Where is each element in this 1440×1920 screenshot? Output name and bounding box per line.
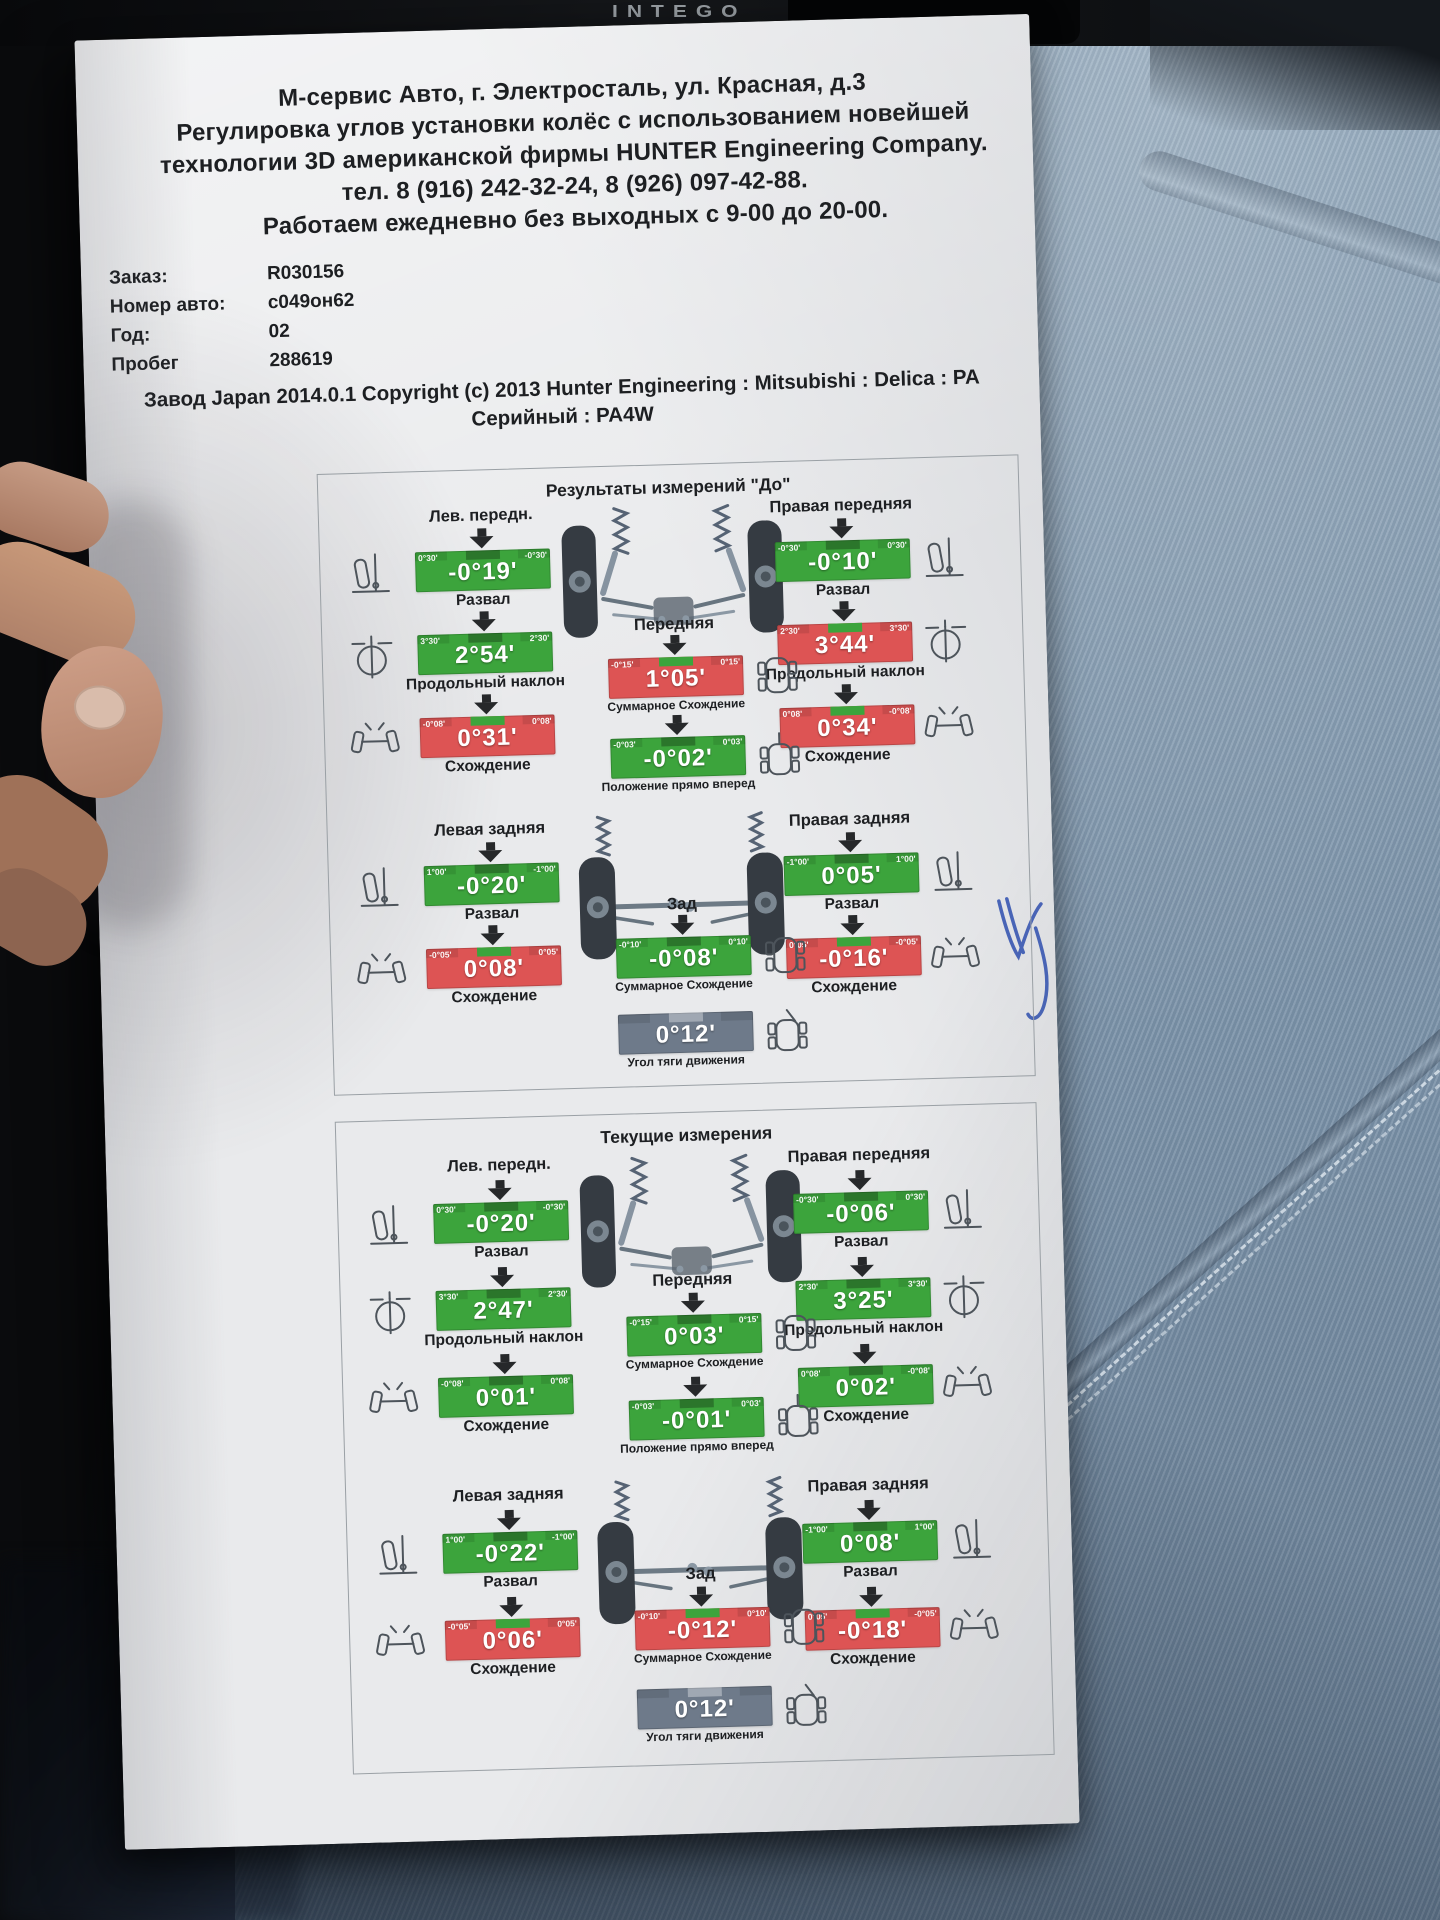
info-value: 02 bbox=[268, 321, 290, 343]
down-arrow-icon bbox=[859, 1587, 884, 1608]
arrow-head bbox=[850, 1265, 874, 1278]
measure-bar: -0°10'0°10'-0°08' bbox=[616, 935, 752, 979]
info-label: Номер авто: bbox=[110, 288, 269, 321]
arrow-head bbox=[859, 1595, 883, 1608]
bar-shoulder bbox=[637, 1689, 669, 1699]
arrow-head bbox=[689, 1594, 713, 1607]
caster-icon bbox=[364, 1289, 419, 1336]
total-toe-icon bbox=[777, 1603, 832, 1650]
range-label-left: -0°10' bbox=[619, 939, 642, 950]
arrow-head bbox=[472, 619, 496, 632]
arrow-head bbox=[852, 1352, 876, 1365]
total-toe-icon bbox=[759, 931, 814, 978]
photo-scene: INTEGO М-сервис Авто, г. Электросталь, у… bbox=[0, 0, 1440, 1920]
range-label-left: 3°30' bbox=[439, 1291, 459, 1302]
measure-bar: -0°30'0°30'-0°06' bbox=[793, 1190, 929, 1234]
thrust-icon bbox=[761, 1007, 816, 1054]
measure-bar: 0°12' bbox=[618, 1011, 754, 1055]
measure-caption: Продольный наклон bbox=[389, 1327, 619, 1351]
arrow-head bbox=[481, 933, 505, 946]
range-label-left: 1°00' bbox=[427, 867, 447, 878]
range-label-left: -1°00' bbox=[787, 856, 810, 867]
target-notch bbox=[468, 633, 502, 643]
alignment-report-paper: М-сервис Авто, г. Электросталь, ул. Крас… bbox=[74, 14, 1079, 1850]
arrow-stem bbox=[841, 684, 850, 692]
info-label: Заказ: bbox=[109, 259, 268, 292]
arrow-head bbox=[490, 1275, 514, 1288]
range-label-left: -1°00' bbox=[805, 1524, 828, 1535]
arrow-stem bbox=[507, 1597, 516, 1605]
down-arrow-icon bbox=[478, 842, 503, 863]
range-label-right: -0°05' bbox=[914, 1608, 937, 1619]
range-label-right: 0°10' bbox=[747, 1608, 767, 1619]
info-row: Пробег288619 bbox=[111, 344, 356, 380]
arrow-stem bbox=[864, 1500, 873, 1508]
down-arrow-icon bbox=[474, 694, 499, 715]
range-label-right: 1°00' bbox=[896, 853, 916, 864]
measure-bar: -0°05'0°05'0°08' bbox=[426, 945, 562, 989]
camber-icon bbox=[353, 865, 408, 912]
measure-caption: Схождение bbox=[391, 1414, 621, 1438]
range-label-right: 3°30' bbox=[889, 622, 909, 633]
measurement-panel-1: Результаты измерений "До"Лев. передн.Пра… bbox=[317, 454, 1036, 1095]
arrow-stem bbox=[857, 1257, 866, 1265]
down-arrow-icon bbox=[469, 528, 494, 549]
caster-icon bbox=[938, 1273, 993, 1320]
target-notch bbox=[830, 706, 864, 716]
range-label-right: 3°30' bbox=[908, 1278, 928, 1289]
arrow-head bbox=[838, 840, 862, 853]
arrow-stem bbox=[837, 518, 846, 526]
target-notch bbox=[836, 937, 870, 947]
info-value: R030156 bbox=[267, 261, 345, 284]
range-label-right: -0°08' bbox=[889, 705, 912, 716]
arrow-head bbox=[832, 609, 856, 622]
measure-bar: -0°03'0°03'-0°01' bbox=[629, 1397, 765, 1441]
caster-icon bbox=[346, 634, 401, 681]
measure-bar: 0°12' bbox=[637, 1686, 773, 1730]
arrow-stem bbox=[848, 915, 857, 923]
target-notch bbox=[834, 854, 868, 864]
range-label-right: -1°00' bbox=[552, 1531, 575, 1542]
range-label-left: -0°08' bbox=[423, 718, 446, 729]
bar-shoulder bbox=[618, 1014, 650, 1024]
arrow-head bbox=[493, 1362, 517, 1375]
down-arrow-icon bbox=[857, 1500, 882, 1521]
target-notch bbox=[687, 1687, 721, 1697]
bar-shoulder bbox=[721, 1011, 753, 1021]
target-notch bbox=[484, 1202, 518, 1212]
camber-icon bbox=[926, 849, 981, 896]
measure-bar: -1°00'1°00'0°08' bbox=[802, 1520, 938, 1564]
target-notch bbox=[495, 1618, 529, 1628]
arrow-stem bbox=[670, 635, 679, 643]
range-label-right: 0°15' bbox=[739, 1314, 759, 1325]
arrow-head bbox=[665, 723, 689, 736]
down-arrow-icon bbox=[847, 1170, 872, 1191]
target-notch bbox=[685, 1608, 719, 1618]
arrow-head bbox=[499, 1605, 523, 1618]
range-label-left: 1°00' bbox=[445, 1534, 465, 1545]
range-label-right: 0°03' bbox=[723, 736, 743, 747]
target-notch bbox=[488, 1376, 522, 1386]
arrow-stem bbox=[488, 925, 497, 933]
range-label-left: 0°30' bbox=[418, 553, 438, 564]
target-notch bbox=[677, 1314, 711, 1324]
info-label: Пробег bbox=[111, 346, 270, 379]
measure-bar: -0°30'0°30'-0°10' bbox=[775, 538, 911, 582]
straight-ahead-icon bbox=[753, 731, 808, 778]
target-notch bbox=[668, 1012, 702, 1022]
range-label-right: 0°30' bbox=[887, 540, 907, 551]
target-notch bbox=[658, 657, 692, 667]
camber-icon bbox=[936, 1186, 991, 1233]
measure-bar: -0°10'0°10'-0°12' bbox=[635, 1607, 771, 1651]
toe-icon bbox=[941, 1360, 996, 1407]
arrow-head bbox=[848, 1178, 872, 1191]
target-notch bbox=[828, 623, 862, 633]
down-arrow-icon bbox=[683, 1376, 708, 1397]
down-arrow-icon bbox=[689, 1586, 714, 1607]
measure-caption: Схождение bbox=[373, 754, 603, 778]
down-arrow-icon bbox=[487, 1180, 512, 1201]
range-label-right: 2°30' bbox=[530, 633, 550, 644]
arrow-stem bbox=[839, 601, 848, 609]
arrow-stem bbox=[500, 1354, 509, 1362]
info-label: Год: bbox=[110, 317, 269, 350]
total-toe-icon bbox=[769, 1309, 824, 1356]
arrow-head bbox=[469, 536, 493, 549]
arrow-head bbox=[663, 643, 687, 656]
range-label-left: -0°05' bbox=[429, 949, 452, 960]
arrow-head bbox=[488, 1188, 512, 1201]
arrow-stem bbox=[485, 842, 494, 850]
down-arrow-icon bbox=[681, 1292, 706, 1313]
range-label-left: 0°08' bbox=[782, 709, 802, 720]
target-notch bbox=[474, 864, 508, 874]
range-label-right: -0°08' bbox=[907, 1365, 930, 1376]
down-arrow-icon bbox=[665, 715, 690, 736]
target-notch bbox=[848, 1366, 882, 1376]
range-label-left: -0°03' bbox=[613, 739, 636, 750]
arrow-stem bbox=[672, 715, 681, 723]
range-label-right: 0°05' bbox=[557, 1618, 577, 1629]
range-label-left: -0°03' bbox=[632, 1401, 655, 1412]
down-arrow-icon bbox=[838, 832, 863, 853]
camber-icon bbox=[344, 551, 399, 598]
range-label-right: 0°08' bbox=[550, 1375, 570, 1386]
range-label-right: -0°30' bbox=[543, 1201, 566, 1212]
measure-bar: -0°05'0°05'0°06' bbox=[445, 1617, 581, 1661]
target-notch bbox=[666, 936, 700, 946]
arrow-stem bbox=[678, 915, 687, 923]
toe-icon bbox=[922, 701, 977, 748]
arrow-head bbox=[829, 526, 853, 539]
info-value: 288619 bbox=[269, 348, 333, 371]
down-arrow-icon bbox=[829, 518, 854, 539]
toe-icon bbox=[367, 1376, 422, 1423]
range-label-right: 1°00' bbox=[915, 1521, 935, 1532]
caster-icon bbox=[920, 618, 975, 665]
arrow-stem bbox=[495, 1180, 504, 1188]
camber-icon bbox=[918, 535, 973, 582]
measure-bar: 0°30'-0°30'-0°19' bbox=[415, 548, 551, 592]
range-label-left: -0°05' bbox=[448, 1621, 471, 1632]
down-arrow-icon bbox=[492, 1354, 517, 1375]
arrow-head bbox=[681, 1300, 705, 1313]
target-notch bbox=[825, 540, 859, 550]
down-arrow-icon bbox=[472, 611, 497, 632]
down-arrow-icon bbox=[834, 684, 859, 705]
measurement-panel-2: Текущие измеренияЛев. передн.Правая пере… bbox=[335, 1102, 1055, 1774]
total-toe-icon bbox=[751, 651, 806, 698]
down-arrow-icon bbox=[490, 1267, 515, 1288]
target-notch bbox=[853, 1521, 887, 1531]
top-right-shadow bbox=[1150, 0, 1440, 130]
range-label-left: -0°30' bbox=[778, 542, 801, 553]
down-arrow-icon bbox=[662, 635, 687, 656]
arrow-stem bbox=[504, 1510, 513, 1518]
arrow-head bbox=[834, 692, 858, 705]
range-label-right: 0°30' bbox=[905, 1191, 925, 1202]
target-notch bbox=[855, 1608, 889, 1618]
camber-icon bbox=[362, 1202, 417, 1249]
measure-bar: -0°03'0°03'-0°02' bbox=[610, 735, 746, 779]
range-label-right: 2°30' bbox=[548, 1288, 568, 1299]
measure-bar: -0°15'0°15'1°05' bbox=[608, 655, 744, 699]
measure-bar: -0°15'0°15'0°03' bbox=[626, 1313, 762, 1357]
toe-icon bbox=[947, 1603, 1002, 1650]
target-notch bbox=[846, 1279, 880, 1289]
range-label-right: 0°15' bbox=[720, 656, 740, 667]
toe-icon bbox=[355, 948, 410, 995]
arrow-stem bbox=[855, 1170, 864, 1178]
range-label-left: 0°08' bbox=[801, 1368, 821, 1379]
measure-bar: -0°08'0°08'0°31' bbox=[420, 714, 556, 758]
bar-shoulder bbox=[740, 1686, 772, 1696]
range-label-right: 0°08' bbox=[532, 716, 552, 727]
arrow-head bbox=[474, 702, 498, 715]
down-arrow-icon bbox=[852, 1344, 877, 1365]
down-arrow-icon bbox=[840, 915, 865, 936]
down-arrow-icon bbox=[499, 1597, 524, 1618]
arrow-head bbox=[497, 1518, 521, 1531]
arrow-head bbox=[857, 1508, 881, 1521]
range-label-right: -0°05' bbox=[895, 936, 918, 947]
target-notch bbox=[679, 1398, 713, 1408]
range-label-left: 3°30' bbox=[420, 636, 440, 647]
range-label-right: -0°30' bbox=[524, 550, 547, 561]
measure-caption: Продольный наклон bbox=[370, 671, 600, 695]
range-label-left: -0°15' bbox=[611, 659, 634, 670]
camber-icon bbox=[371, 1532, 426, 1579]
measure-bar: 0°30'-0°30'-0°20' bbox=[433, 1200, 569, 1244]
arrow-stem bbox=[497, 1267, 506, 1275]
measure-bar: -1°00'1°00'0°05' bbox=[783, 852, 919, 896]
arrow-stem bbox=[688, 1293, 697, 1301]
measure-bar: 1°00'-1°00'-0°22' bbox=[442, 1530, 578, 1574]
toe-icon bbox=[348, 717, 403, 764]
camber-icon bbox=[945, 1516, 1000, 1563]
range-label-left: -0°10' bbox=[638, 1611, 661, 1622]
arrow-stem bbox=[691, 1377, 700, 1385]
measure-bar: 3°30'2°30'2°47' bbox=[436, 1287, 572, 1331]
target-notch bbox=[486, 1289, 520, 1299]
range-label-right: 0°03' bbox=[741, 1398, 761, 1409]
range-label-left: -0°30' bbox=[796, 1194, 819, 1205]
down-arrow-icon bbox=[850, 1257, 875, 1278]
thumb-nail bbox=[71, 682, 129, 733]
measure-bar: -0°08'0°08'0°01' bbox=[438, 1374, 574, 1418]
down-arrow-icon bbox=[497, 1510, 522, 1531]
down-arrow-icon bbox=[831, 601, 856, 622]
target-notch bbox=[470, 716, 504, 726]
measure-bar: 1°00'-1°00'-0°20' bbox=[424, 862, 560, 906]
target-notch bbox=[465, 550, 499, 560]
measure-bar: 3°30'2°30'2°54' bbox=[417, 631, 553, 675]
down-arrow-icon bbox=[670, 915, 695, 936]
info-value: с049он62 bbox=[268, 290, 355, 313]
target-notch bbox=[843, 1192, 877, 1202]
range-label-right: 0°10' bbox=[728, 936, 748, 947]
range-label-right: -1°00' bbox=[533, 863, 556, 874]
range-label-left: 0°30' bbox=[436, 1204, 456, 1215]
target-notch bbox=[661, 737, 695, 747]
report-header: М-сервис Авто, г. Электросталь, ул. Крас… bbox=[131, 62, 1017, 247]
range-label-left: -0°15' bbox=[629, 1317, 652, 1328]
target-notch bbox=[493, 1532, 527, 1542]
arrow-head bbox=[478, 850, 502, 863]
arrow-head bbox=[683, 1384, 707, 1397]
toe-icon bbox=[929, 932, 984, 979]
arrow-stem bbox=[860, 1344, 869, 1352]
dashboard-brand-text: INTEGO bbox=[612, 2, 747, 22]
down-arrow-icon bbox=[480, 925, 505, 946]
straight-ahead-icon bbox=[772, 1393, 827, 1440]
target-notch bbox=[476, 947, 510, 957]
arrow-head bbox=[670, 923, 694, 936]
order-info: Заказ:R030156 Номер авто:с049он62 Год:02… bbox=[109, 257, 357, 380]
arrow-head bbox=[840, 923, 864, 936]
range-label-left: -0°08' bbox=[441, 1378, 464, 1389]
toe-icon bbox=[374, 1619, 429, 1666]
thrust-icon bbox=[780, 1682, 835, 1729]
range-label-right: 0°05' bbox=[538, 946, 558, 957]
